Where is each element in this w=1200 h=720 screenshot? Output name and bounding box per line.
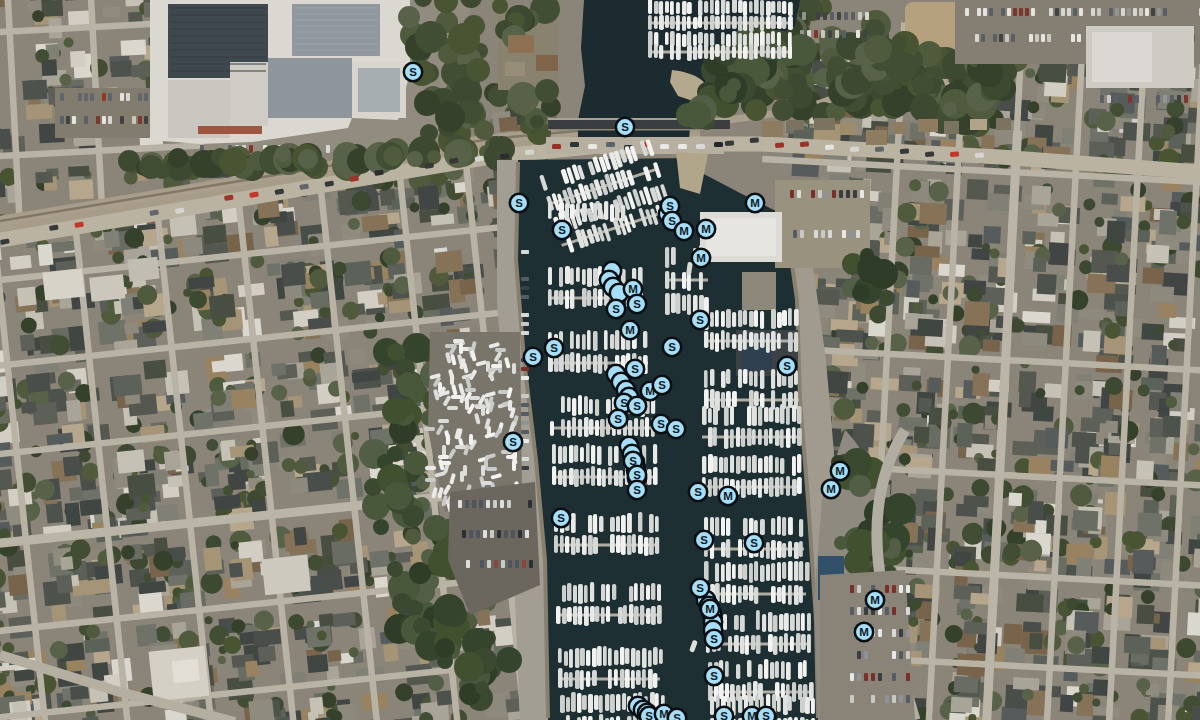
svg-text:S: S xyxy=(673,712,681,720)
svg-text:M: M xyxy=(701,223,711,235)
svg-text:S: S xyxy=(645,710,653,720)
svg-text:S: S xyxy=(550,342,558,354)
svg-text:S: S xyxy=(668,341,676,353)
svg-text:S: S xyxy=(710,633,718,645)
svg-text:S: S xyxy=(710,670,718,682)
svg-text:M: M xyxy=(870,594,880,606)
svg-text:S: S xyxy=(614,413,622,425)
svg-text:S: S xyxy=(558,224,566,236)
svg-text:M: M xyxy=(859,626,869,638)
svg-text:M: M xyxy=(679,225,689,237)
svg-text:S: S xyxy=(509,436,517,448)
svg-text:S: S xyxy=(612,303,620,315)
svg-text:S: S xyxy=(672,423,680,435)
svg-text:S: S xyxy=(631,363,639,375)
svg-text:S: S xyxy=(557,512,565,524)
svg-text:S: S xyxy=(633,400,641,412)
svg-text:M: M xyxy=(747,710,757,720)
svg-text:M: M xyxy=(628,283,638,295)
svg-text:M: M xyxy=(625,324,635,336)
svg-text:S: S xyxy=(658,379,666,391)
svg-text:M: M xyxy=(705,603,715,615)
svg-text:M: M xyxy=(723,490,733,502)
svg-text:S: S xyxy=(633,298,641,310)
svg-text:M: M xyxy=(696,252,706,264)
svg-text:S: S xyxy=(762,710,770,720)
svg-text:S: S xyxy=(700,534,708,546)
svg-text:S: S xyxy=(720,710,728,720)
svg-text:S: S xyxy=(515,197,523,209)
svg-text:M: M xyxy=(835,465,845,477)
svg-text:S: S xyxy=(657,418,665,430)
svg-text:S: S xyxy=(783,360,791,372)
svg-text:S: S xyxy=(668,215,676,227)
svg-text:S: S xyxy=(409,66,417,78)
svg-text:S: S xyxy=(696,582,704,594)
svg-text:S: S xyxy=(694,486,702,498)
svg-text:S: S xyxy=(666,200,674,212)
svg-text:S: S xyxy=(529,351,537,363)
svg-text:S: S xyxy=(633,469,641,481)
svg-text:S: S xyxy=(621,121,629,133)
svg-text:M: M xyxy=(826,483,836,495)
svg-text:S: S xyxy=(750,537,758,549)
svg-text:M: M xyxy=(750,197,760,209)
svg-text:S: S xyxy=(633,484,641,496)
svg-text:S: S xyxy=(696,314,704,326)
